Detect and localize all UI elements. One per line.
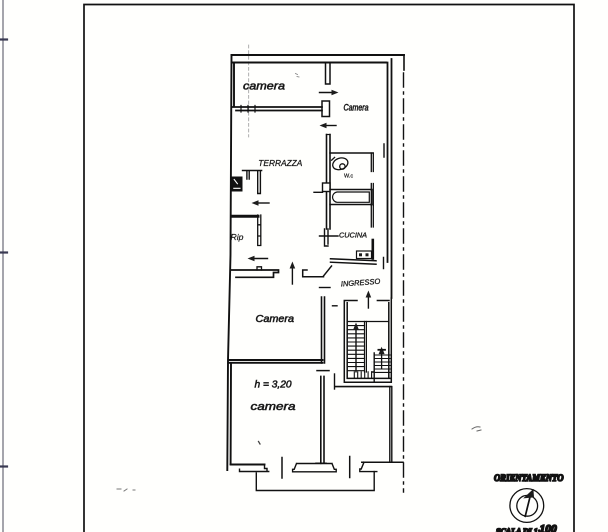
svg-text:CUCINA: CUCINA xyxy=(339,233,367,240)
svg-text:ORIENTAMENTO: ORIENTAMENTO xyxy=(494,473,564,484)
svg-text:Camera: Camera xyxy=(344,103,369,113)
svg-text:camera: camera xyxy=(251,401,296,413)
svg-text:camera: camera xyxy=(243,81,285,93)
svg-text:Camera: Camera xyxy=(256,314,295,325)
svg-text:TERRAZZA: TERRAZZA xyxy=(258,159,302,168)
svg-text:Rip: Rip xyxy=(231,232,244,242)
svg-text:W.c: W.c xyxy=(344,174,353,180)
svg-text:h = 3,20: h = 3,20 xyxy=(255,380,292,391)
svg-text:100: 100 xyxy=(540,524,558,532)
svg-text:SCALA DI 1:: SCALA DI 1: xyxy=(496,527,541,532)
